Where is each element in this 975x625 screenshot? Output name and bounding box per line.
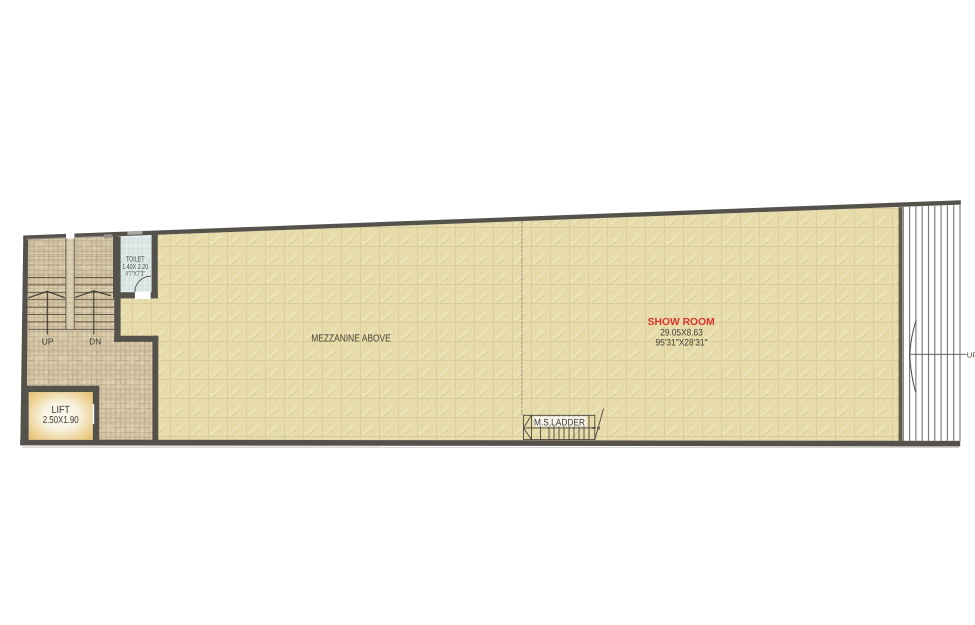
svg-text:M.S.LADDER: M.S.LADDER [534,417,585,428]
svg-text:2.50X1.90: 2.50X1.90 [43,415,79,426]
svg-text:95'31"X28'31": 95'31"X28'31" [656,338,708,349]
svg-text:4'7"X7'3": 4'7"X7'3" [125,270,145,277]
svg-text:UP: UP [967,350,975,359]
svg-text:SHOW ROOM: SHOW ROOM [648,317,715,328]
svg-text:MEZZANINE ABOVE: MEZZANINE ABOVE [311,333,391,344]
svg-text:UP: UP [42,337,54,347]
svg-text:DN: DN [89,337,101,347]
